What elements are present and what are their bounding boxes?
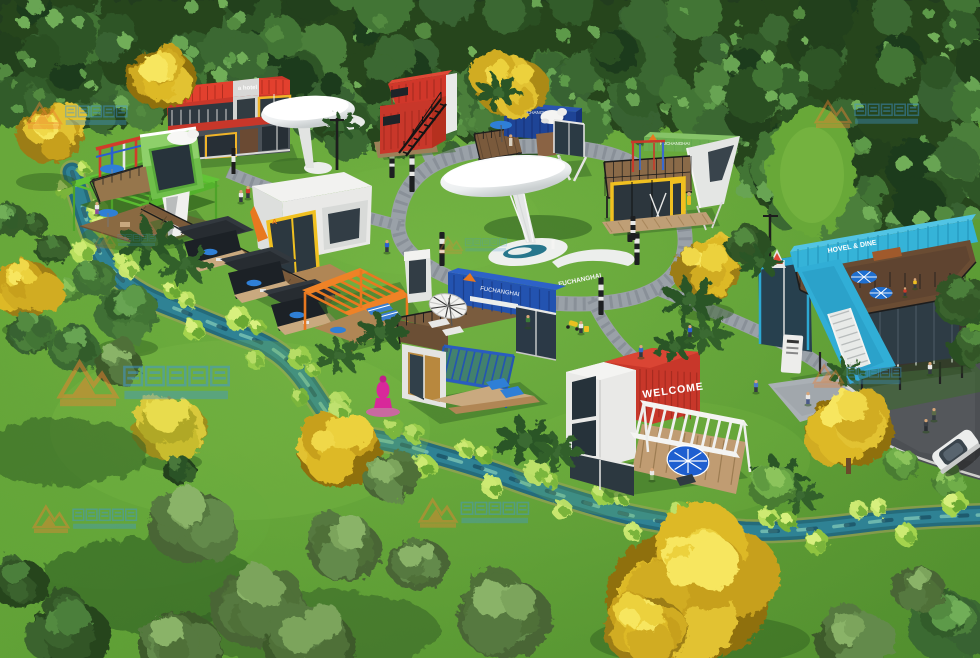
svg-text:a hotel: a hotel <box>238 85 258 92</box>
svg-text:A: A <box>272 219 277 226</box>
